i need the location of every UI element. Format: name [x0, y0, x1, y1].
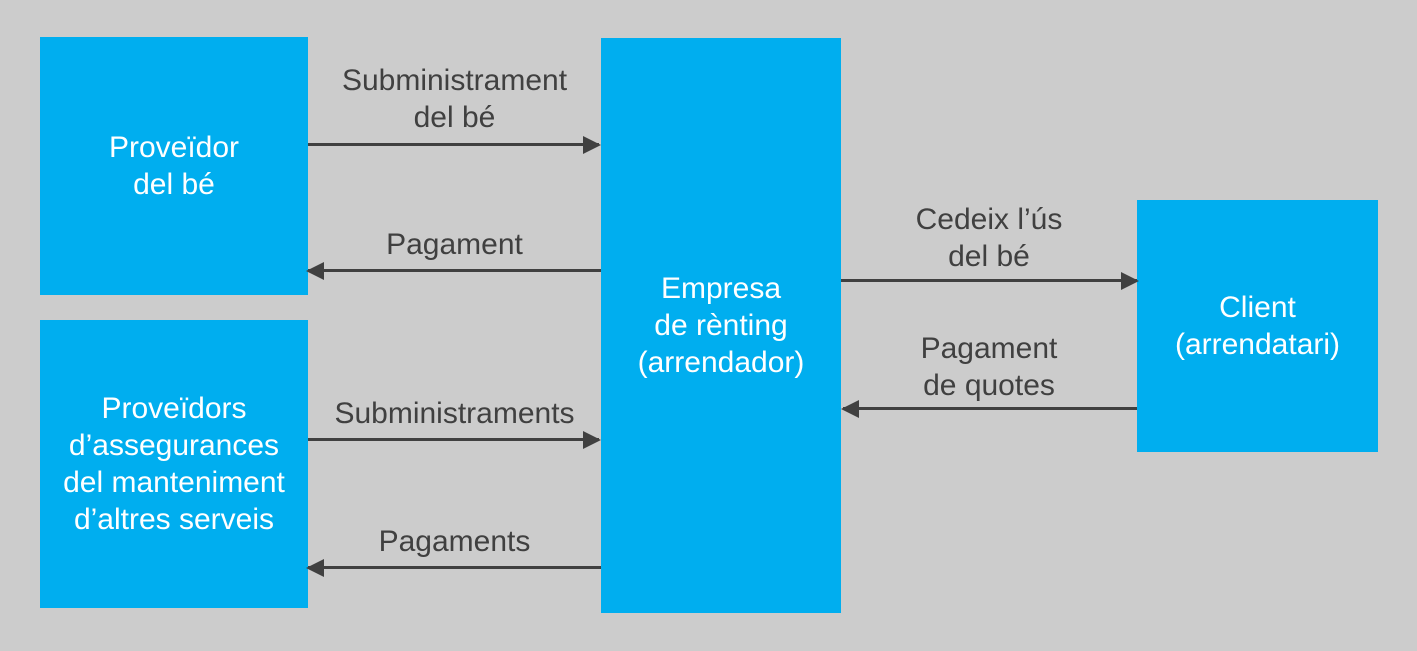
flow-label-line: Subministrament: [310, 62, 599, 99]
node-provider-services-line: d’assegurances: [69, 427, 279, 464]
arrow-supplies: [308, 438, 599, 441]
arrowhead-right-icon: [583, 136, 601, 154]
flow-label-line: de quotes: [841, 367, 1137, 404]
flow-label-supply-good: Subministrament del bé: [310, 62, 599, 136]
node-client-line: Client: [1219, 289, 1296, 326]
node-renting-company: Empresa de rènting (arrendador): [601, 38, 841, 613]
flow-label-line: Subministraments: [310, 395, 599, 432]
node-provider-services-line: d’altres serveis: [74, 501, 274, 538]
flow-label-line: Cedeix l’ús: [841, 201, 1137, 238]
arrow-payments: [308, 566, 601, 569]
node-provider-services-line: del manteniment: [63, 464, 285, 501]
flow-label-line: del bé: [310, 99, 599, 136]
flow-label-line: Pagament: [310, 226, 599, 263]
node-renting-company-line: (arrendador): [638, 344, 805, 381]
arrowhead-left-icon: [306, 262, 324, 280]
arrow-fee-payment: [843, 407, 1137, 410]
node-provider-services-line: Proveïdors: [101, 390, 246, 427]
node-provider-services: Proveïdors d’assegurances del mantenimen…: [40, 320, 308, 608]
arrowhead-right-icon: [583, 431, 601, 449]
flow-label-payment-good: Pagament: [310, 226, 599, 263]
node-provider-good-line: del bé: [133, 166, 215, 203]
arrowhead-left-icon: [306, 559, 324, 577]
renting-flow-diagram: Proveïdor del bé Proveïdors d’asseguranc…: [0, 0, 1417, 651]
flow-label-payments: Pagaments: [310, 523, 599, 560]
flow-label-line: Pagaments: [310, 523, 599, 560]
node-renting-company-line: de rènting: [654, 307, 787, 344]
arrow-supply-good: [308, 143, 599, 146]
node-renting-company-line: Empresa: [661, 270, 781, 307]
node-client: Client (arrendatari): [1137, 200, 1378, 452]
arrow-cede-use: [841, 279, 1137, 282]
flow-label-line: del bé: [841, 238, 1137, 275]
node-provider-good-line: Proveïdor: [109, 129, 239, 166]
arrow-payment-good: [308, 269, 601, 272]
node-client-line: (arrendatari): [1175, 326, 1340, 363]
arrowhead-left-icon: [841, 400, 859, 418]
flow-label-fee-payment: Pagament de quotes: [841, 330, 1137, 404]
flow-label-supplies: Subministraments: [310, 395, 599, 432]
node-provider-good: Proveïdor del bé: [40, 37, 308, 295]
flow-label-cede-use: Cedeix l’ús del bé: [841, 201, 1137, 275]
arrowhead-right-icon: [1121, 272, 1139, 290]
flow-label-line: Pagament: [841, 330, 1137, 367]
